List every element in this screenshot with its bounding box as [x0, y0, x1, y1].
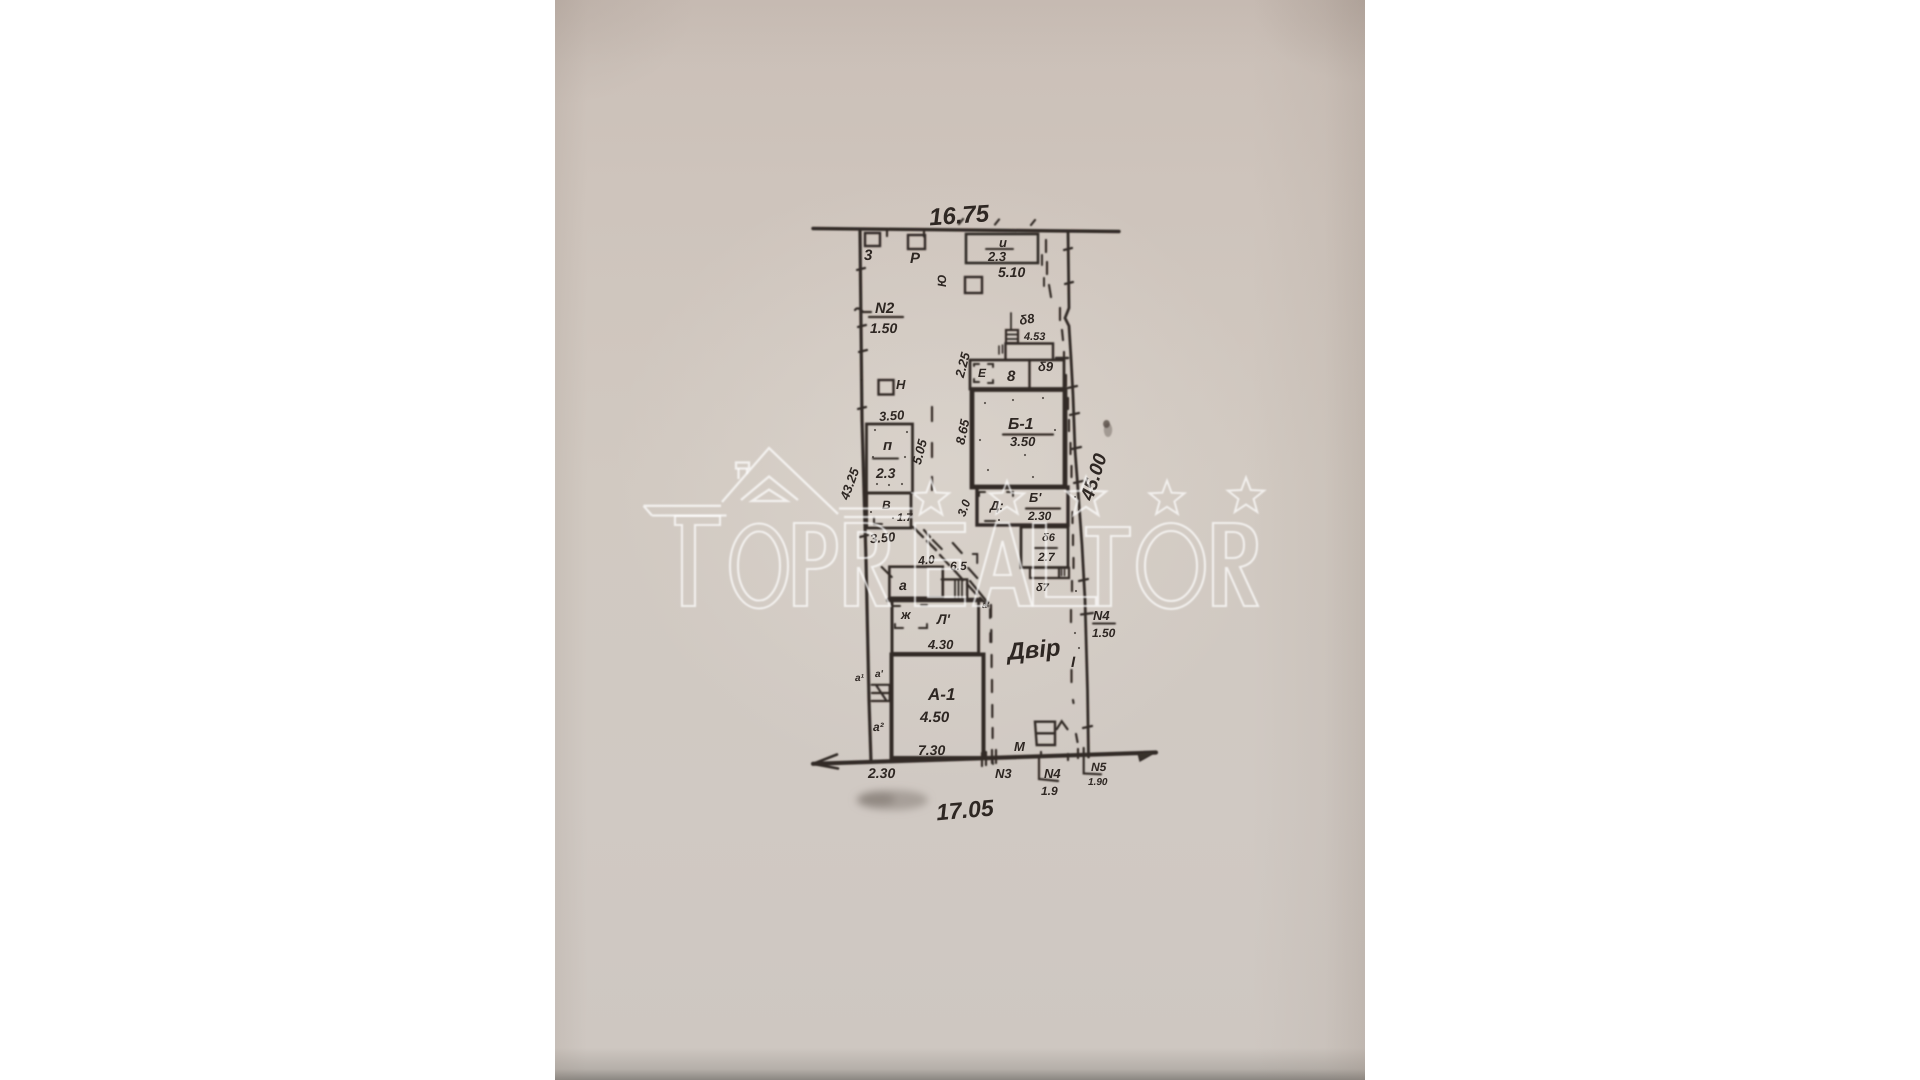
svg-text:δ6: δ6	[1042, 532, 1056, 544]
svg-text:H: H	[896, 377, 906, 392]
svg-text:3: 3	[864, 247, 873, 264]
svg-text:a¹: a¹	[855, 673, 865, 684]
svg-text:M: M	[1014, 739, 1026, 754]
svg-text:п: п	[883, 437, 892, 454]
svg-text:a: a	[899, 577, 907, 593]
svg-text:1.9: 1.9	[1041, 784, 1058, 798]
svg-text:Л': Л'	[936, 611, 951, 627]
svg-text:2.30: 2.30	[867, 765, 895, 781]
svg-text:2.3: 2.3	[875, 465, 896, 481]
svg-text:1.50: 1.50	[870, 320, 897, 336]
svg-text:Б': Б'	[1029, 490, 1042, 505]
svg-text:8: 8	[1007, 368, 1016, 385]
svg-text:2.3: 2.3	[987, 249, 1007, 264]
svg-text:δ7: δ7	[1036, 582, 1050, 594]
svg-text:1.90: 1.90	[1088, 777, 1108, 788]
svg-text:P: P	[910, 250, 921, 267]
svg-text:N4: N4	[1093, 608, 1110, 623]
svg-text:Б-1: Б-1	[1008, 416, 1034, 433]
svg-text:2.30: 2.30	[1027, 509, 1052, 523]
svg-text:43.25: 43.25	[837, 465, 863, 502]
svg-text:3.50: 3.50	[878, 407, 905, 424]
svg-text:N4: N4	[1044, 766, 1061, 781]
svg-text:Ю: Ю	[935, 274, 949, 287]
svg-text:N2: N2	[875, 300, 895, 317]
svg-text:a': a'	[875, 669, 884, 680]
svg-text:4.50: 4.50	[919, 709, 950, 726]
svg-text:3.50: 3.50	[869, 529, 896, 546]
svg-text:5.10: 5.10	[998, 264, 1025, 280]
svg-text:A-1: A-1	[927, 685, 955, 704]
svg-text:Двір: Двір	[1004, 634, 1061, 666]
svg-text:a²: a²	[873, 720, 885, 734]
svg-text:N3: N3	[995, 766, 1012, 781]
svg-text:4.53: 4.53	[1023, 331, 1045, 343]
svg-text:3.50: 3.50	[1010, 434, 1036, 449]
svg-text:δ9: δ9	[1038, 359, 1054, 374]
svg-text:δ8: δ8	[1018, 310, 1036, 328]
svg-text:I: I	[1071, 654, 1076, 671]
svg-text:N5: N5	[1091, 760, 1107, 774]
svg-text:45.00: 45.00	[1077, 451, 1112, 504]
svg-text:и: и	[999, 235, 1007, 250]
svg-text:B: B	[882, 498, 891, 512]
svg-text:3.0: 3.0	[955, 497, 974, 518]
svg-text:ж: ж	[900, 607, 912, 622]
svg-text:17.05: 17.05	[935, 794, 996, 825]
svg-text:4.30: 4.30	[927, 637, 954, 652]
svg-text:1.50: 1.50	[1092, 626, 1116, 640]
svg-text:E: E	[978, 366, 987, 380]
svg-text:16.75: 16.75	[928, 200, 990, 231]
svg-text:6.5: 6.5	[950, 559, 967, 573]
svg-text:7.30: 7.30	[918, 742, 945, 758]
